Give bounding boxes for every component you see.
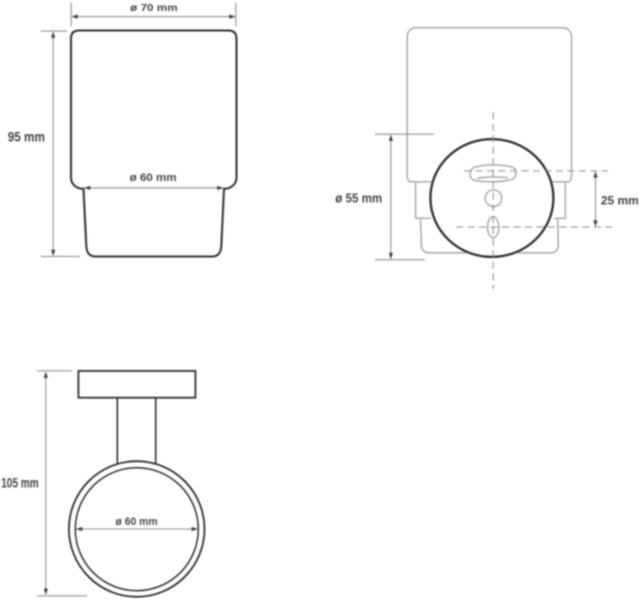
svg-text:ø 70 mm: ø 70 mm xyxy=(130,2,177,14)
svg-text:105 mm: 105 mm xyxy=(1,476,39,491)
svg-text:ø 55 mm: ø 55 mm xyxy=(335,191,382,206)
svg-text:25 mm: 25 mm xyxy=(601,194,639,208)
svg-text:ø 60 mm: ø 60 mm xyxy=(116,516,158,528)
svg-text:95 mm: 95 mm xyxy=(8,129,45,144)
svg-text:ø 60 mm: ø 60 mm xyxy=(130,172,177,184)
